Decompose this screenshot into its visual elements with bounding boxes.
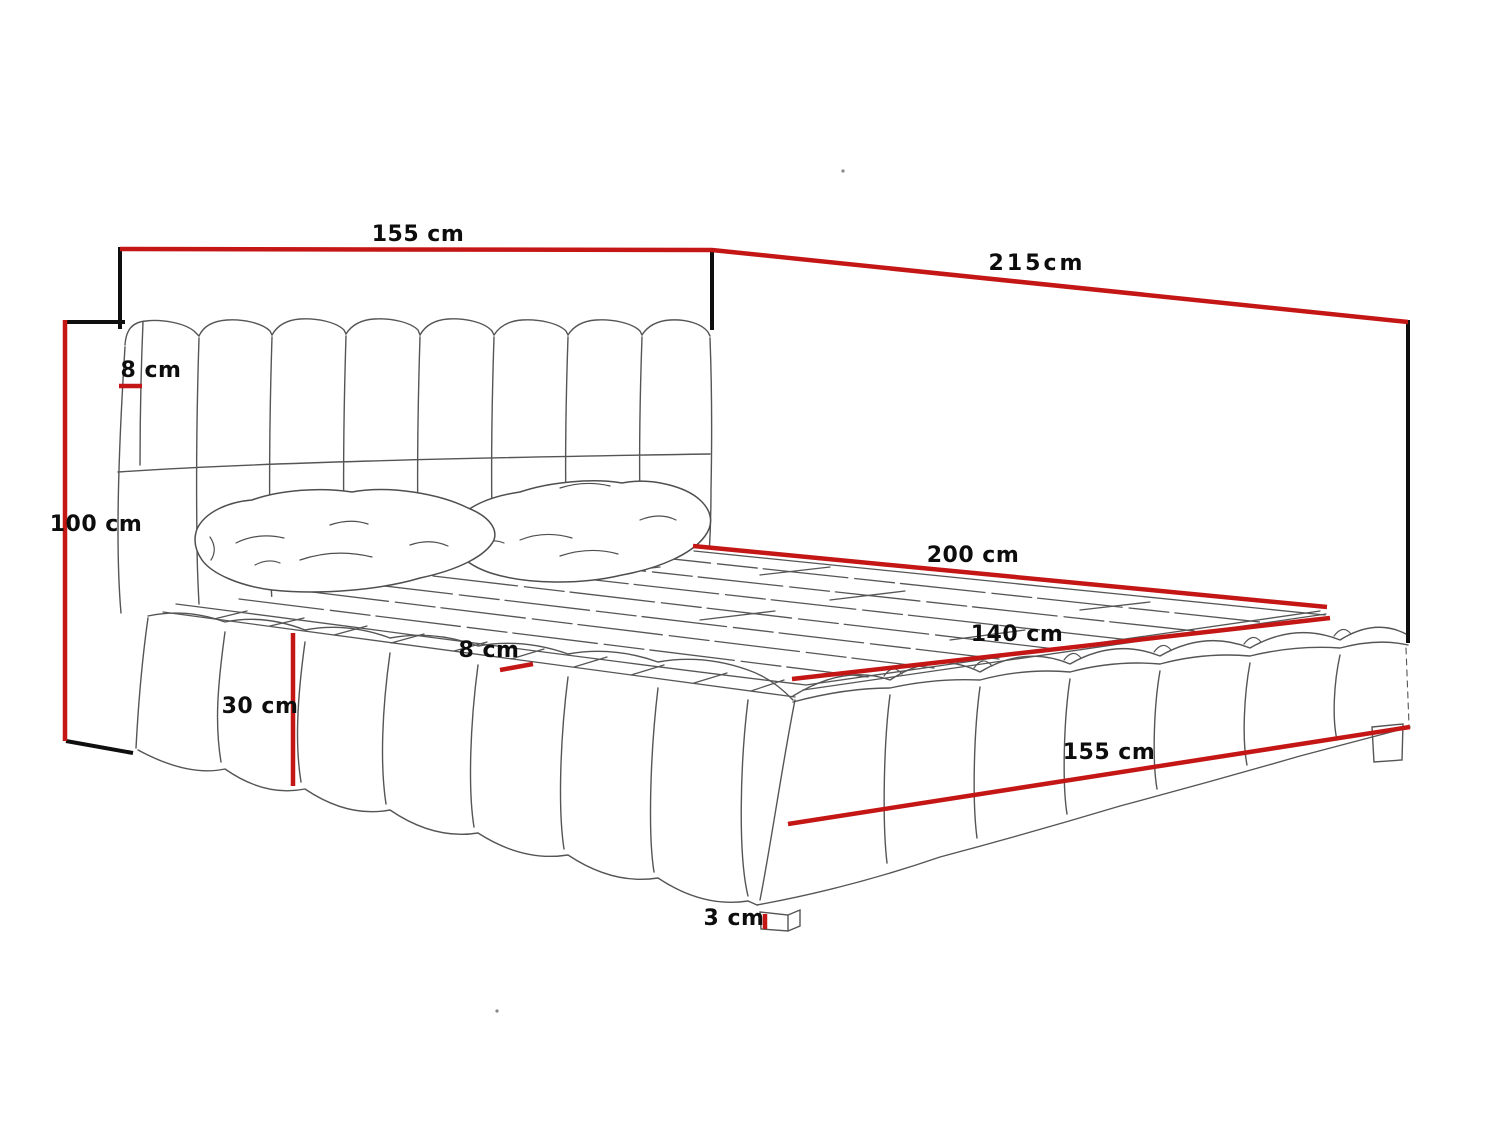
dim-label-base-height: 30 cm [222,696,299,718]
artifact-dot-top [841,169,844,172]
headboard-panel-seam [140,322,143,465]
tick-headboard-height-bottom [66,741,133,753]
dim-label-bed-length: 215cm [989,253,1086,275]
dim-label-headboard-width: 155 cm [372,224,465,246]
dim-label-bed-width: 155 cm [1063,742,1156,764]
headboard-seam-1 [197,338,199,604]
bed-dimension-diagram: 155 cm 215cm 100 cm 8 cm 200 cm 140 cm 8… [0,0,1500,1125]
headboard-top-scallops [125,319,710,345]
dim-label-leg-height: 3 cm [704,908,765,930]
foot-face [757,645,1410,905]
dim-label-headboard-height: 100 cm [50,514,143,536]
dim-line-headboard-width [120,249,712,250]
dim-label-frame-edge-thickness: 8 cm [459,640,520,662]
artifact-dot-bottom [495,1009,498,1012]
dim-label-mattress-width: 140 cm [971,624,1064,646]
bed-sketch-canvas [0,0,1500,1125]
headboard-horizontal-seam [118,454,710,472]
dim-label-headboard-panel-thickness: 8 cm [121,360,182,382]
dim-label-mattress-length: 200 cm [927,545,1020,567]
